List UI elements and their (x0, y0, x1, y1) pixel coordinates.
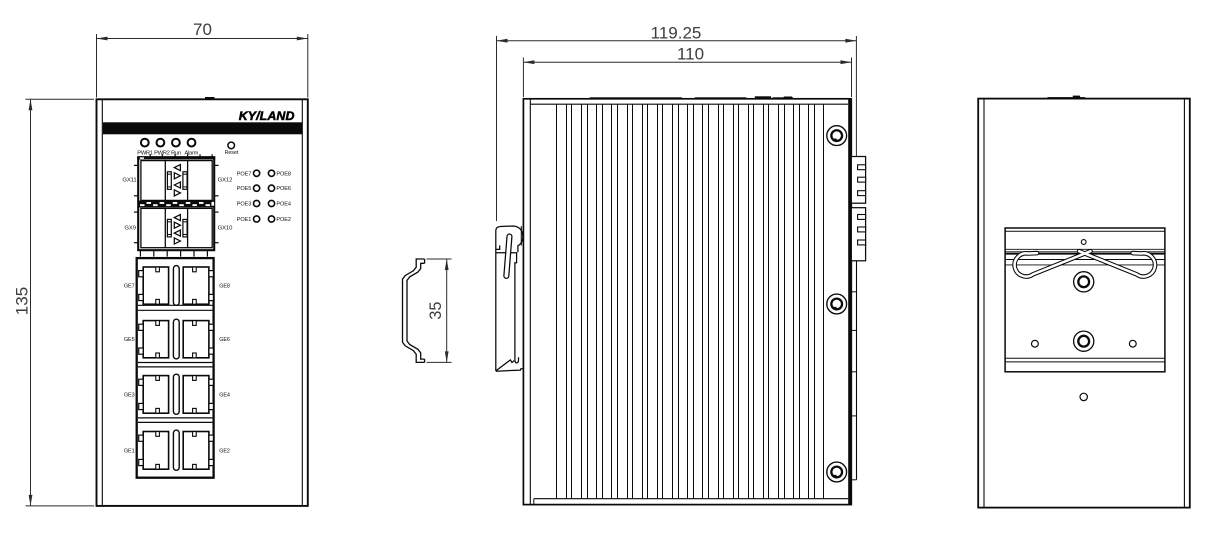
svg-text:GE4: GE4 (219, 392, 230, 398)
svg-text:POE5: POE5 (237, 186, 252, 192)
svg-text:GE8: GE8 (219, 284, 230, 290)
svg-text:POE2: POE2 (276, 217, 291, 223)
svg-text:135: 135 (12, 287, 31, 315)
svg-text:GX11: GX11 (122, 178, 136, 184)
svg-text:KY/LAND: KY/LAND (239, 109, 295, 123)
svg-text:GE3: GE3 (124, 392, 135, 398)
svg-text:GE6: GE6 (219, 337, 230, 343)
svg-text:GE1: GE1 (124, 448, 135, 454)
svg-text:GX10: GX10 (218, 226, 233, 232)
svg-text:GE2: GE2 (219, 448, 230, 454)
svg-text:POE3: POE3 (237, 202, 252, 208)
svg-text:GE7: GE7 (124, 284, 135, 290)
svg-text:POE1: POE1 (237, 217, 252, 223)
svg-text:Alarm: Alarm (184, 151, 198, 157)
svg-text:Reset: Reset (225, 150, 239, 156)
svg-text:35: 35 (427, 301, 445, 319)
svg-text:119.25: 119.25 (651, 24, 702, 43)
svg-text:GE5: GE5 (124, 337, 135, 343)
svg-text:POE7: POE7 (237, 171, 252, 177)
svg-text:POE8: POE8 (276, 171, 291, 177)
svg-text:GX12: GX12 (218, 178, 233, 184)
svg-text:POE6: POE6 (276, 186, 291, 192)
svg-text:GX9: GX9 (124, 226, 136, 232)
svg-text:Run: Run (171, 151, 181, 157)
svg-text:70: 70 (193, 20, 212, 39)
svg-text:110: 110 (677, 45, 704, 64)
svg-text:POE4: POE4 (276, 202, 291, 208)
